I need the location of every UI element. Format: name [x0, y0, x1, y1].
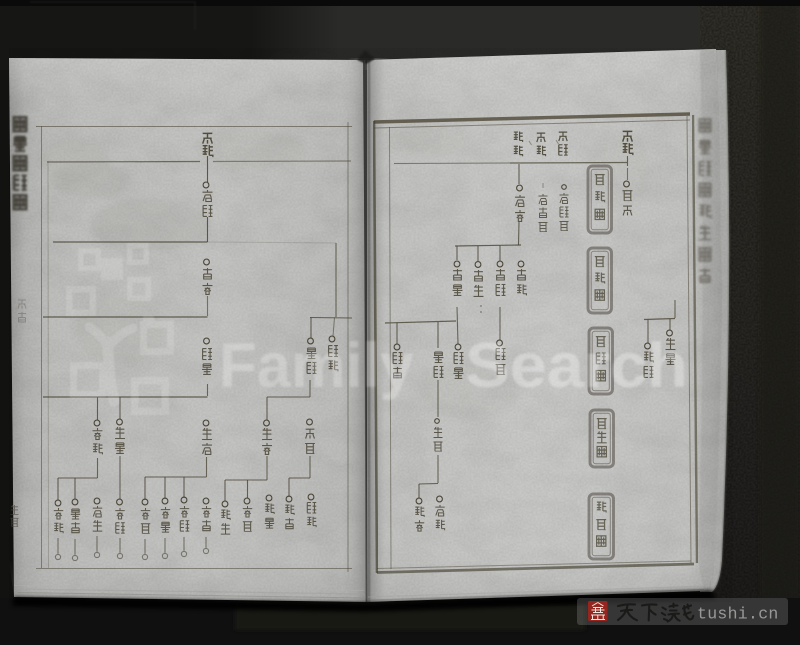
svg-text:tushi.cn: tushi.cn [697, 605, 779, 624]
svg-text:Search: Search [465, 331, 688, 401]
svg-text:Family: Family [219, 331, 414, 401]
